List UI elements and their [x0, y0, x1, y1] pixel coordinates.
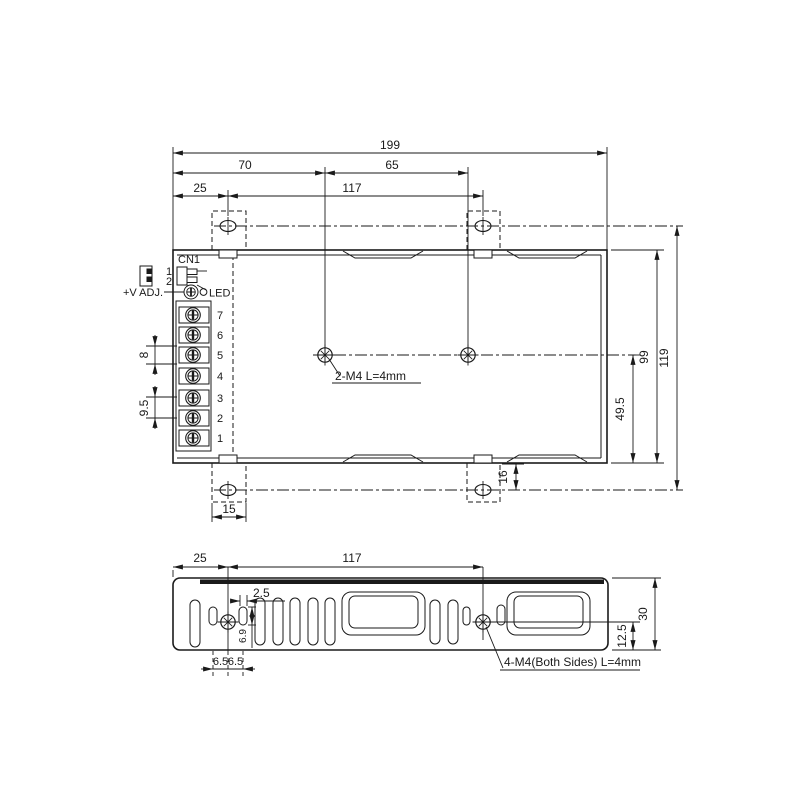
bracket-tab: [219, 455, 237, 463]
small-slot: [209, 607, 217, 625]
dim-117-top: 117: [342, 181, 361, 195]
cn1-label: CN1: [178, 254, 200, 266]
top-view: 2-M4 L=4mm CN1 1 2 +V ADJ.: [123, 138, 683, 522]
dim-6-9: 6.9: [238, 629, 249, 643]
terminal-number-7: 7: [217, 310, 223, 322]
case-body: [173, 250, 607, 463]
mating-connector-icon: [140, 266, 152, 286]
dim-70: 70: [238, 158, 252, 172]
dim-65: 65: [385, 158, 399, 172]
bracket-tab: [474, 455, 492, 463]
bracket-top-right: [467, 211, 500, 250]
side-view: 25 117 2.5 6.9 6.5 6.5: [173, 551, 661, 676]
cover-edge: [200, 580, 604, 585]
dim-9-5: 9.5: [137, 399, 151, 416]
terminal-screw: [186, 328, 201, 343]
bracket-top-left: [212, 211, 246, 250]
terminal-number-3: 3: [217, 393, 223, 405]
chassis-mounting-holes: 2-M4 L=4mm: [313, 345, 640, 384]
terminal-screw: [186, 411, 201, 426]
dim-16: 16: [496, 470, 510, 484]
dim-49-5: 49.5: [613, 397, 627, 421]
dim-6-5-b: 6.5: [228, 656, 243, 668]
vent-slot: [325, 598, 335, 645]
vent-slot: [190, 600, 200, 647]
dim-30: 30: [636, 607, 650, 621]
small-slot: [463, 607, 470, 625]
side-view-dimensions: 25 117 2.5 6.9 6.5 6.5: [173, 551, 661, 676]
pin2-label: 2: [166, 276, 172, 288]
terminal-screw: [186, 431, 201, 446]
mechanical-drawing: 2-M4 L=4mm CN1 1 2 +V ADJ.: [0, 0, 800, 800]
led-label: LED: [209, 288, 230, 300]
vent-slot: [448, 600, 458, 644]
terminal-number-2: 2: [217, 413, 223, 425]
terminal-number-4: 4: [217, 371, 223, 383]
terminal-block: 7 6 5 4 3 2 1: [176, 301, 223, 451]
punched-opening-left: [342, 592, 425, 635]
vent-slot: [290, 598, 300, 645]
dim-119: 119: [657, 348, 671, 367]
bracket-tab: [474, 250, 492, 258]
dim-199: 199: [380, 138, 400, 152]
dim-99: 99: [637, 350, 651, 364]
vent-slot: [308, 598, 318, 645]
leader-line: [486, 627, 503, 668]
vent-slot: [273, 598, 283, 645]
mechanical-drawing-page: 2-M4 L=4mm CN1 1 2 +V ADJ.: [0, 0, 800, 800]
dim-2-5: 2.5: [253, 586, 270, 600]
chassis-holes-note: 2-M4 L=4mm: [335, 369, 406, 383]
potentiometer-icon: [184, 285, 198, 299]
side-vents-and-slots: [190, 592, 590, 647]
terminal-number-5: 5: [217, 350, 223, 362]
vadj-label: +V ADJ.: [123, 287, 163, 299]
case-outline: [173, 250, 607, 463]
dim-6-5-a: 6.5: [213, 656, 228, 668]
dim-12-5: 12.5: [615, 624, 629, 648]
terminal-number-6: 6: [217, 330, 223, 342]
edge-vent-louvers: [343, 251, 587, 462]
terminal-screw: [186, 391, 201, 406]
cn1-connector-icon: [177, 267, 207, 290]
dim-117-side: 117: [342, 551, 361, 565]
dim-15: 15: [222, 502, 236, 516]
terminal-screw: [186, 348, 201, 363]
terminal-number-1: 1: [217, 433, 223, 445]
side-holes-note: 4-M4(Both Sides) L=4mm: [504, 655, 641, 669]
terminal-screw: [186, 308, 201, 323]
led-icon: [200, 289, 207, 296]
dim-25-side: 25: [193, 551, 207, 565]
dim-25-top: 25: [193, 181, 207, 195]
vent-slot: [430, 600, 440, 644]
small-slot: [239, 607, 247, 625]
vent-slot: [255, 598, 265, 645]
vadj-led-area: +V ADJ. LED: [123, 285, 231, 300]
punched-opening-right: [507, 592, 590, 635]
bracket-tab: [219, 250, 237, 258]
terminal-screw: [186, 369, 201, 384]
dim-8: 8: [137, 351, 151, 358]
bracket-bottom-left: [212, 463, 246, 502]
